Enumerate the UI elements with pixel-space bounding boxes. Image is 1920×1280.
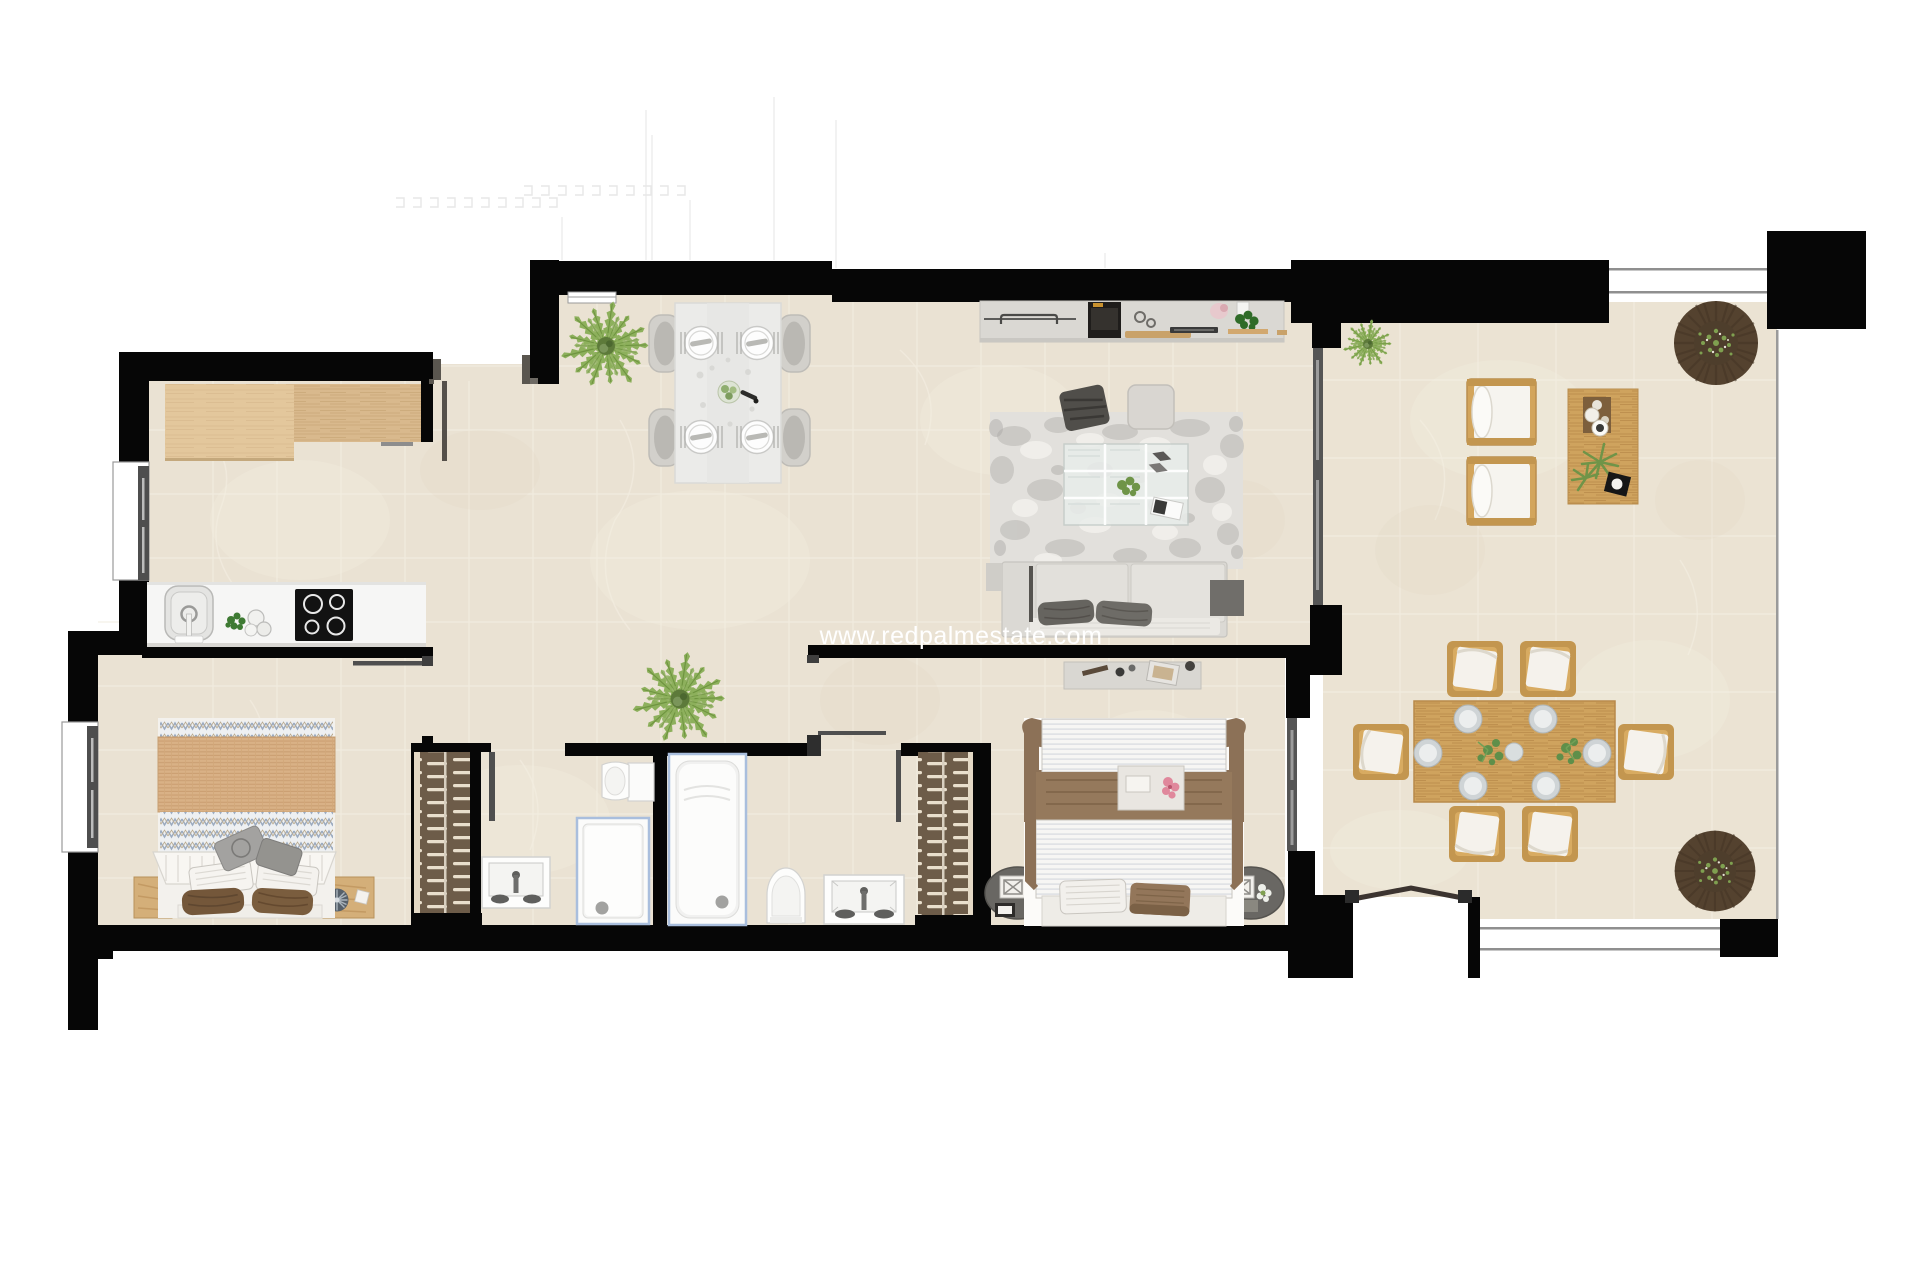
svg-text:www.redpalmestate.com: www.redpalmestate.com	[819, 622, 1103, 650]
